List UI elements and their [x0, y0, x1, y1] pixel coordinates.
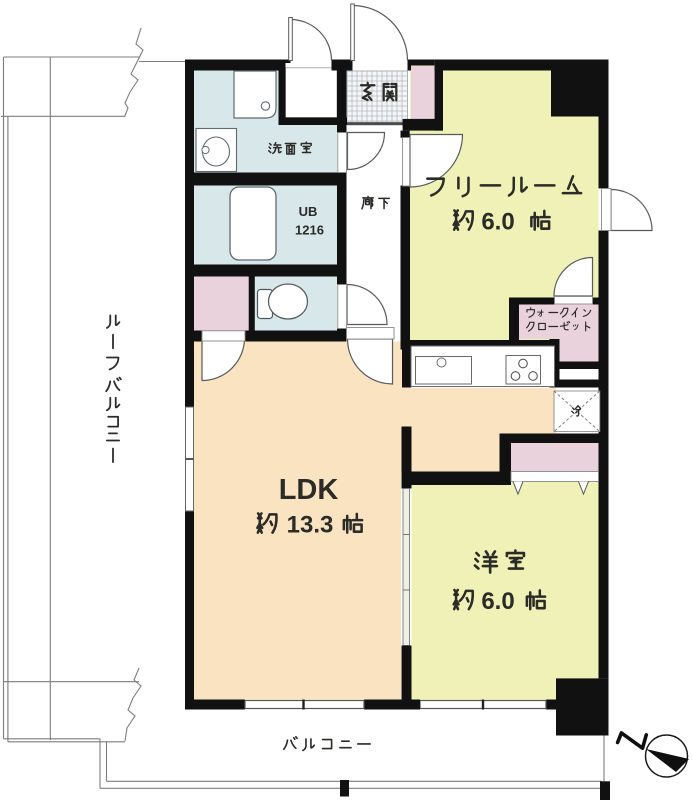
- svg-text:13.3: 13.3: [287, 512, 334, 539]
- svg-text:1216: 1216: [295, 223, 324, 238]
- svg-text:6.0: 6.0: [481, 588, 514, 615]
- svg-text:UB: UB: [299, 204, 318, 219]
- svg-text:LDK: LDK: [279, 474, 339, 506]
- svg-text:6.0: 6.0: [481, 209, 514, 236]
